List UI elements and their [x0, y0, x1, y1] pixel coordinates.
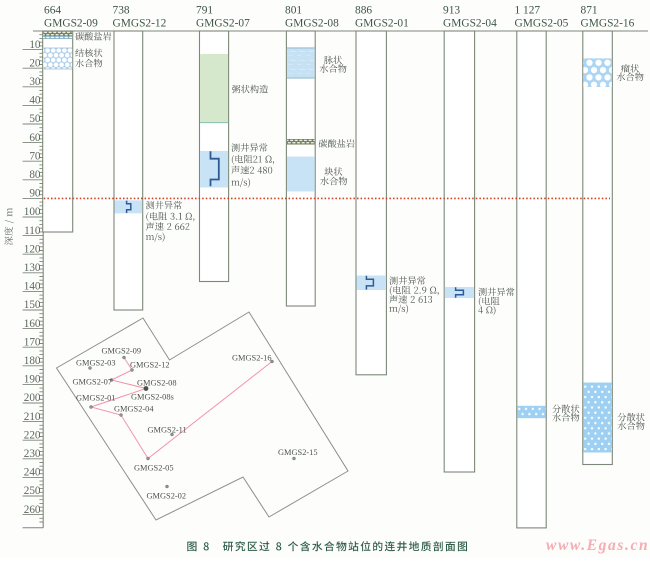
svg-text:GMGS2-16: GMGS2-16 [581, 18, 635, 30]
svg-text:GMGS2-09: GMGS2-09 [44, 18, 98, 30]
svg-text:200: 200 [24, 392, 41, 404]
svg-text:GMGS2-09: GMGS2-09 [102, 347, 142, 356]
svg-text:GMGS2-12: GMGS2-12 [113, 18, 167, 30]
svg-text:GMGS2-08: GMGS2-08 [285, 18, 339, 30]
svg-text:GMGS2-07: GMGS2-07 [73, 378, 113, 387]
svg-text:GMGS2-08s: GMGS2-08s [131, 393, 174, 402]
svg-text:30: 30 [29, 76, 41, 88]
svg-text:90: 90 [29, 188, 41, 200]
svg-text:GMGS2-01: GMGS2-01 [355, 18, 409, 30]
svg-text:871: 871 [581, 5, 598, 17]
svg-text:GMGS2-04: GMGS2-04 [114, 405, 154, 414]
svg-text:738: 738 [113, 5, 130, 17]
svg-text:913: 913 [443, 5, 460, 17]
svg-text:40: 40 [29, 95, 41, 107]
svg-text:130: 130 [24, 262, 41, 274]
svg-text:886: 886 [355, 5, 372, 17]
svg-text:120: 120 [24, 243, 41, 255]
svg-text:100: 100 [24, 206, 41, 218]
svg-text:664: 664 [44, 5, 61, 17]
svg-text:GMGS2-01: GMGS2-01 [76, 394, 116, 403]
svg-text:230: 230 [24, 448, 41, 460]
svg-text:170: 170 [24, 336, 41, 348]
svg-text:60: 60 [29, 132, 41, 144]
svg-text:801: 801 [285, 5, 302, 17]
svg-text:791: 791 [196, 5, 213, 17]
svg-text:220: 220 [24, 429, 41, 441]
svg-text:GMGS2-15: GMGS2-15 [278, 448, 318, 457]
svg-text:250: 250 [24, 485, 41, 497]
svg-text:150: 150 [24, 299, 41, 311]
svg-text:210: 210 [24, 411, 41, 423]
svg-text:50: 50 [29, 113, 41, 125]
svg-text:GMGS2-02: GMGS2-02 [147, 492, 187, 501]
svg-text:www.Egas.cn: www.Egas.cn [546, 537, 649, 554]
svg-text:20: 20 [29, 57, 41, 69]
svg-text:GMGS2-16: GMGS2-16 [232, 354, 272, 363]
svg-text:110: 110 [24, 225, 41, 237]
svg-text:GMGS2-07: GMGS2-07 [196, 18, 250, 30]
svg-text:10: 10 [29, 39, 41, 51]
svg-text:70: 70 [29, 150, 41, 162]
svg-text:1 127: 1 127 [515, 5, 541, 17]
svg-text:260: 260 [24, 504, 41, 516]
svg-text:GMGS2-12: GMGS2-12 [130, 361, 170, 370]
svg-text:160: 160 [24, 318, 41, 330]
svg-text:GMGS2-08: GMGS2-08 [137, 379, 177, 388]
svg-text:240: 240 [24, 467, 41, 479]
svg-text:180: 180 [24, 355, 41, 367]
svg-text:GMGS2-11: GMGS2-11 [148, 426, 187, 435]
svg-text:GMGS2-05: GMGS2-05 [134, 464, 174, 473]
svg-text:GMGS2-04: GMGS2-04 [443, 18, 497, 30]
svg-text:GMGS2-05: GMGS2-05 [515, 18, 569, 30]
svg-text:80: 80 [29, 169, 41, 181]
svg-text:140: 140 [24, 281, 41, 293]
svg-text:190: 190 [24, 374, 41, 386]
svg-text:GMGS2-03: GMGS2-03 [76, 359, 116, 368]
